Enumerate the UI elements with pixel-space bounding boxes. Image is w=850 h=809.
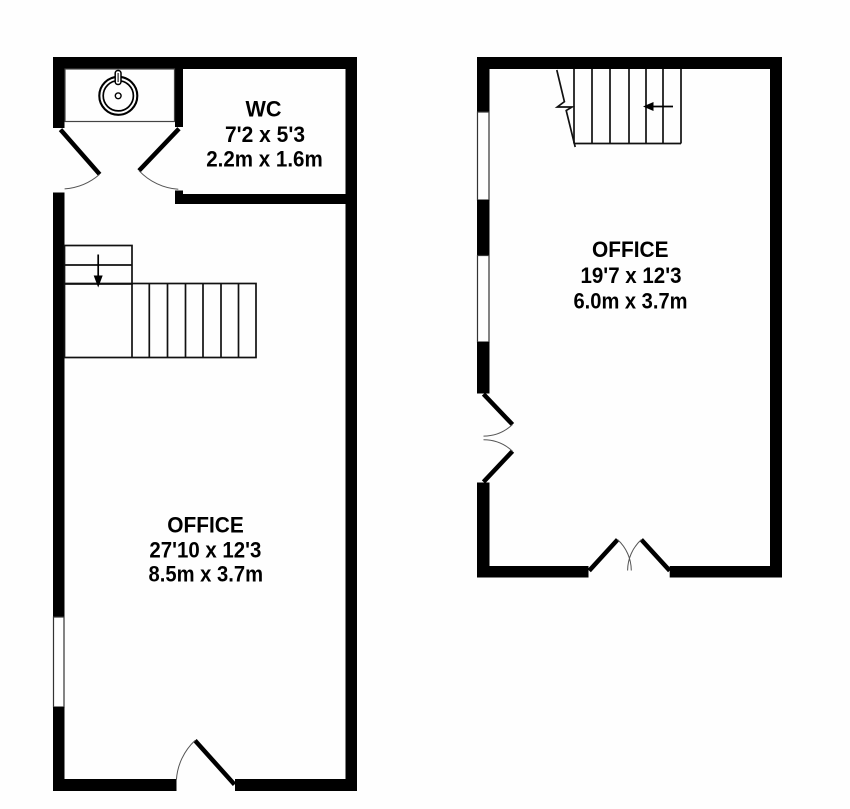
svg-text:OFFICE: OFFICE [167,513,244,538]
svg-text:19'7 x 12'3: 19'7 x 12'3 [581,263,682,288]
svg-text:WC: WC [246,96,282,121]
svg-text:6.0m x 3.7m: 6.0m x 3.7m [574,289,688,314]
svg-text:27'10 x 12'3: 27'10 x 12'3 [149,538,261,563]
svg-text:OFFICE: OFFICE [592,237,669,262]
svg-text:2.2m x 1.6m: 2.2m x 1.6m [206,147,323,172]
svg-text:8.5m x 3.7m: 8.5m x 3.7m [149,562,264,587]
svg-text:7'2 x 5'3: 7'2 x 5'3 [225,122,305,147]
